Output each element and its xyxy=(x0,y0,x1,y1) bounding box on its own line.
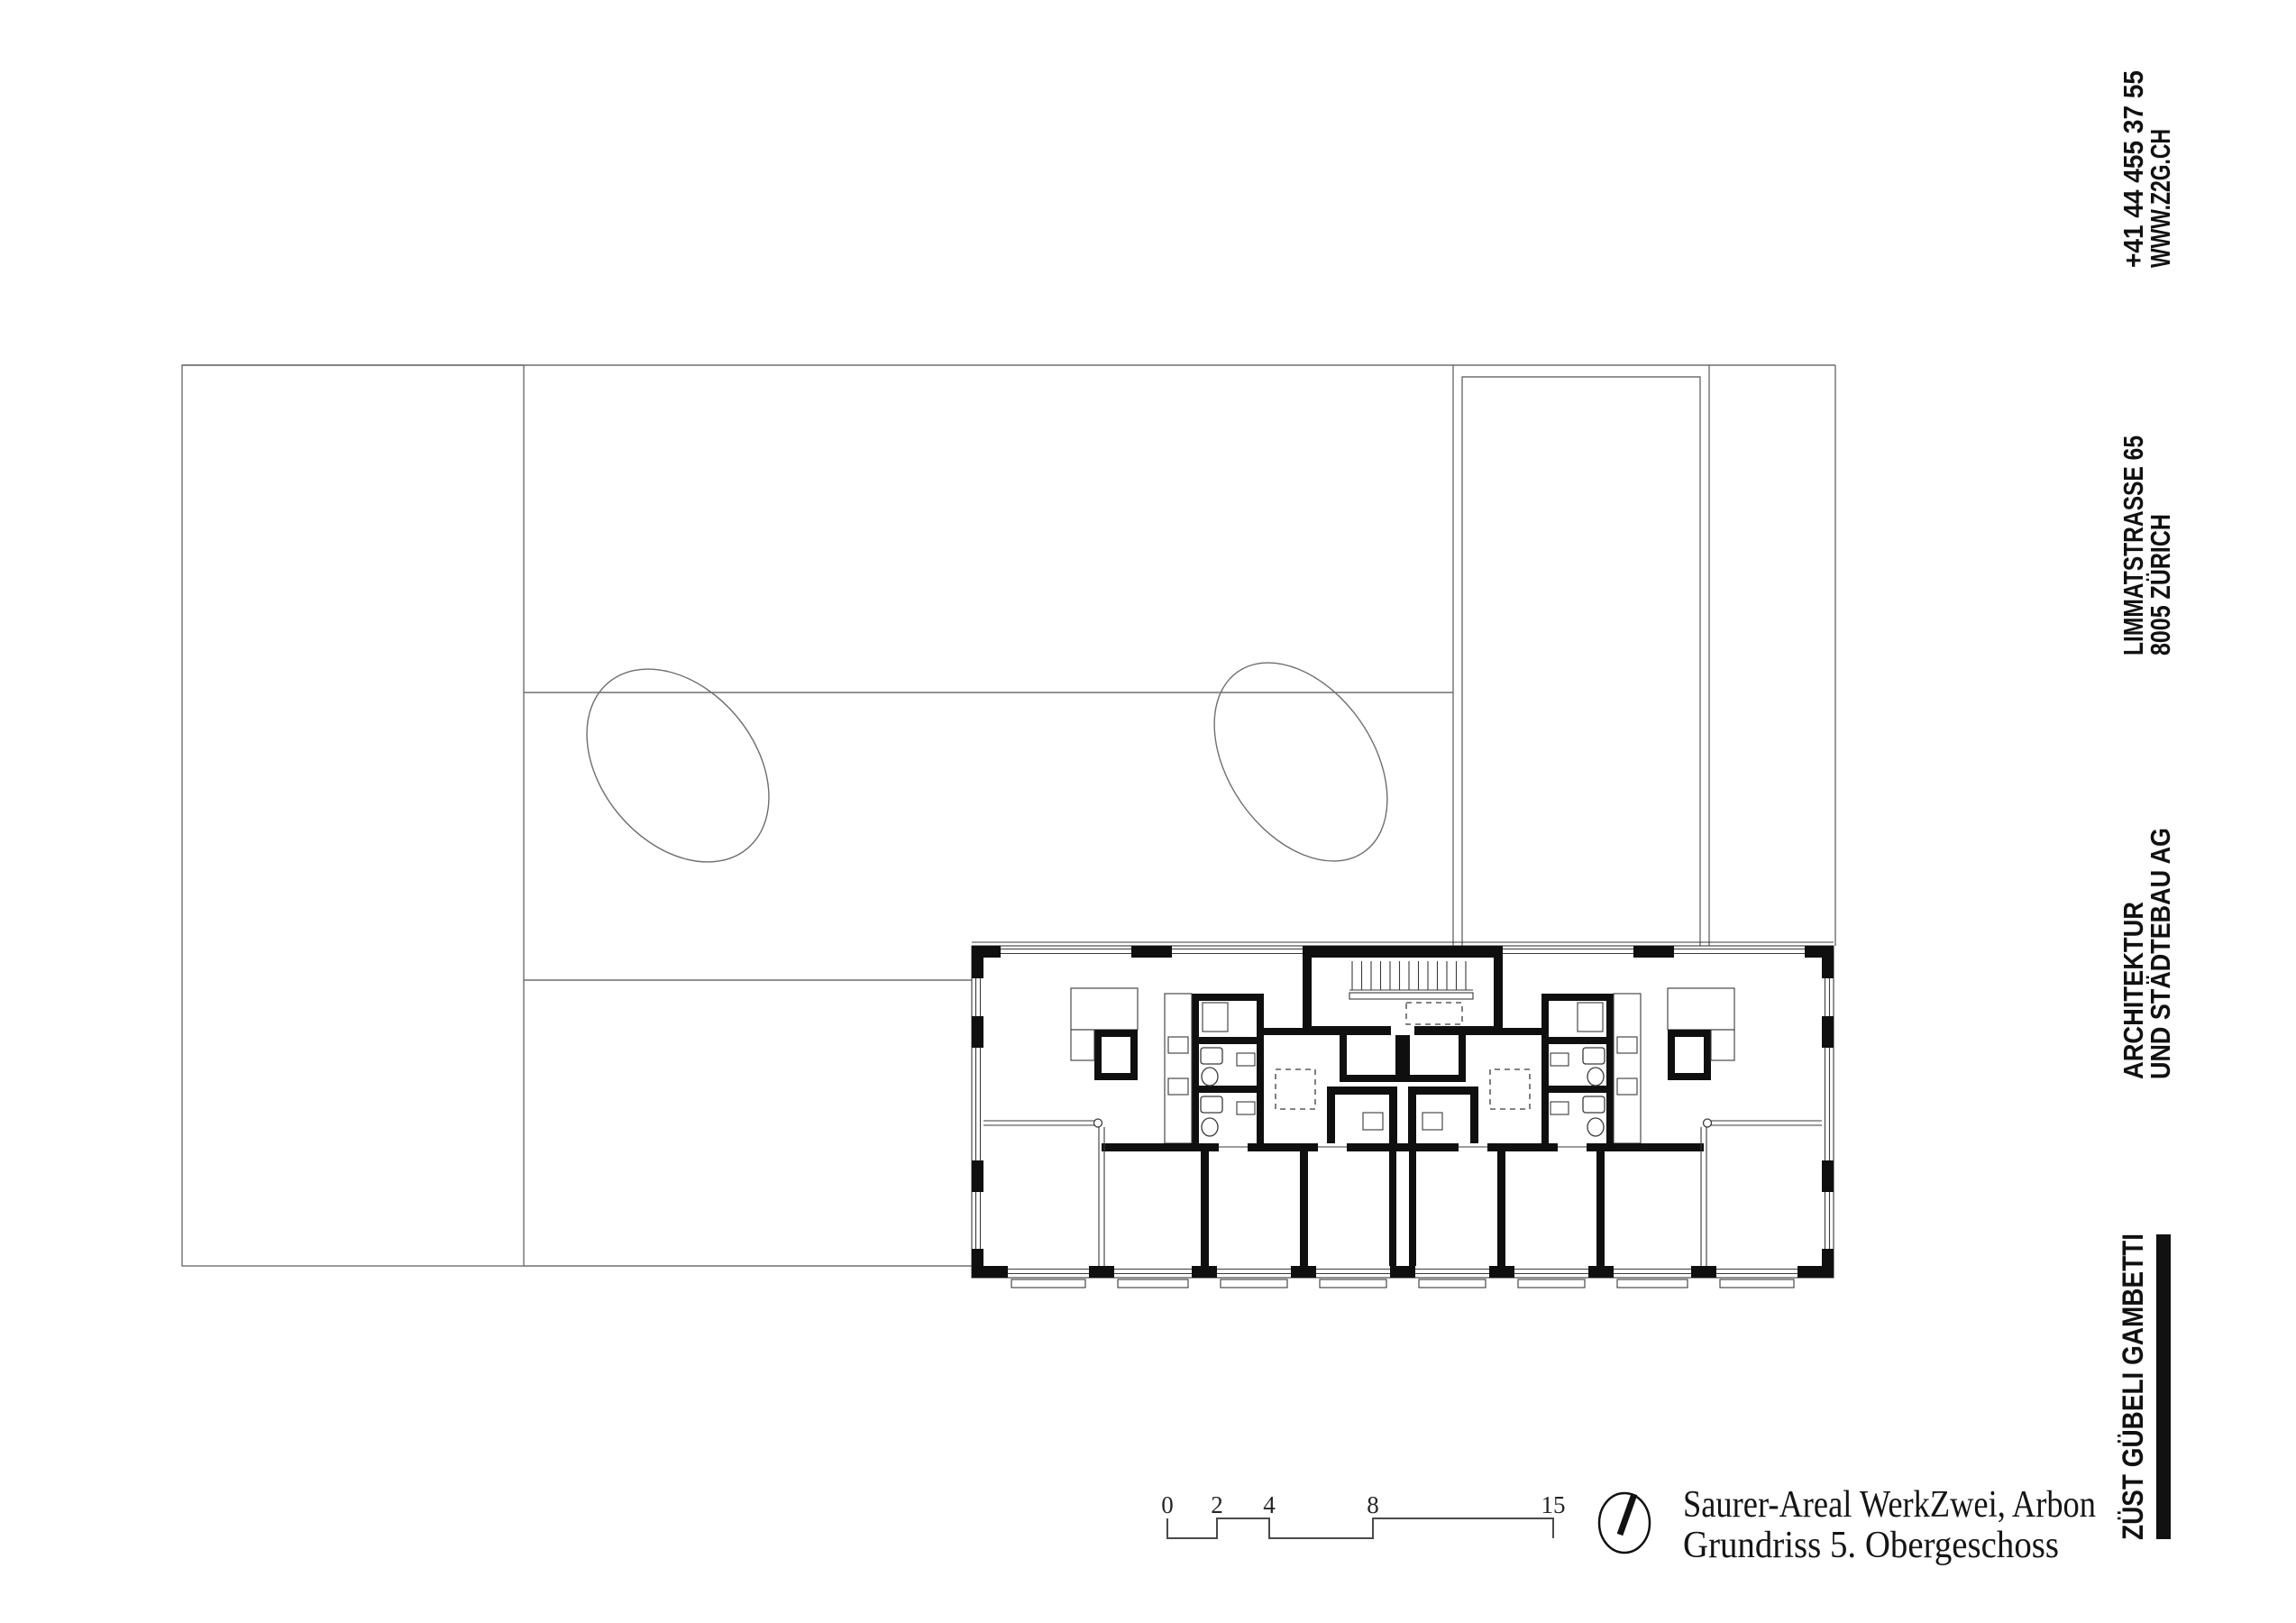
scale-label-4: 4 xyxy=(1263,1491,1276,1518)
north-arrow-icon xyxy=(1599,1493,1650,1553)
logo-bar xyxy=(2156,1234,2171,1539)
apartment-unit-left xyxy=(972,946,1403,1288)
drawing-title: Grundriss 5. Obergeschoss xyxy=(1683,1525,2059,1566)
scale-label-8: 8 xyxy=(1367,1491,1379,1518)
scale-label-2: 2 xyxy=(1211,1491,1223,1518)
stair-treads xyxy=(1352,961,1466,990)
site-building-left xyxy=(182,365,524,1266)
apartment-unit-right-mirrored xyxy=(1403,946,1834,1288)
firm-logo-text: ZÜST GÜBELI GAMBETTI xyxy=(2117,1233,2149,1540)
stair-core xyxy=(1349,961,1473,1024)
site-court-inner xyxy=(1462,377,1700,946)
scale-label-15: 15 xyxy=(1541,1491,1566,1518)
firm-descriptor-line2: UND STÄDTEBAU AG xyxy=(2145,828,2176,1079)
stair-void-dashed xyxy=(1406,1003,1462,1024)
title-block: Saurer-Areal WerkZwei, Arbon Grundriss 5… xyxy=(1683,1484,2096,1566)
scale-label-0: 0 xyxy=(1161,1491,1174,1518)
firm-website: WWW.Z2G.CH xyxy=(2145,129,2176,268)
site-plan-outline xyxy=(182,365,1835,1266)
stair-landing xyxy=(1349,993,1473,999)
sheet-canvas: 0 2 4 8 15 Saurer-Areal WerkZwei, Arbon … xyxy=(0,0,2296,1623)
project-title: Saurer-Areal WerkZwei, Arbon xyxy=(1683,1484,2096,1526)
firm-sidebar: +41 44 455 37 55 WWW.Z2G.CH LIMMATSTRASS… xyxy=(2117,70,2176,1540)
firm-city: 8005 ZÜRICH xyxy=(2145,514,2176,656)
drawing-sheet: 0 2 4 8 15 Saurer-Areal WerkZwei, Arbon … xyxy=(0,0,2296,1623)
floor-plan xyxy=(972,942,1834,1288)
site-blob-left xyxy=(550,633,806,897)
scale-bar-line xyxy=(1167,1518,1553,1538)
scale-bar: 0 2 4 8 15 xyxy=(1161,1491,1565,1538)
site-blob-right xyxy=(1178,630,1422,894)
